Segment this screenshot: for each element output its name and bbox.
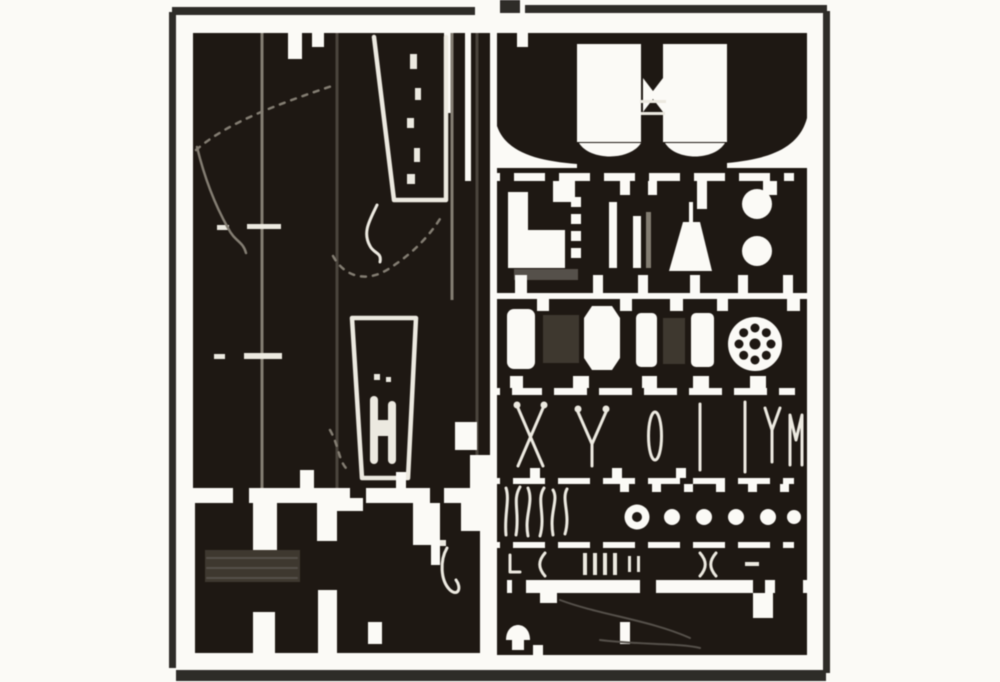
rectangular-strip-parts bbox=[195, 498, 480, 653]
small-clamp-parts-row bbox=[497, 548, 807, 580]
stowage-box-and-discs-row bbox=[497, 181, 807, 293]
ring-and-rivet-dots-row bbox=[497, 484, 807, 542]
ring-part bbox=[625, 505, 650, 530]
tool-parts-row bbox=[497, 395, 807, 478]
sprue-gap bbox=[500, 542, 807, 548]
long-strip-part-row bbox=[497, 593, 807, 655]
large-plate-panel bbox=[193, 33, 490, 488]
fender-parts-row bbox=[497, 33, 807, 173]
disc-part bbox=[742, 236, 772, 266]
right-fret-panel bbox=[497, 33, 807, 655]
fret-illustration bbox=[0, 0, 1000, 682]
photo-etch-fret-photo bbox=[0, 0, 1000, 682]
sprue-gap bbox=[500, 388, 807, 395]
sprue-gap bbox=[500, 173, 807, 181]
sprue-gap bbox=[500, 478, 807, 484]
plates-and-wheel-hub-row bbox=[497, 299, 807, 388]
sprue-gap bbox=[497, 580, 803, 593]
disc-part bbox=[742, 189, 772, 219]
wheel-hub-part bbox=[728, 317, 782, 371]
